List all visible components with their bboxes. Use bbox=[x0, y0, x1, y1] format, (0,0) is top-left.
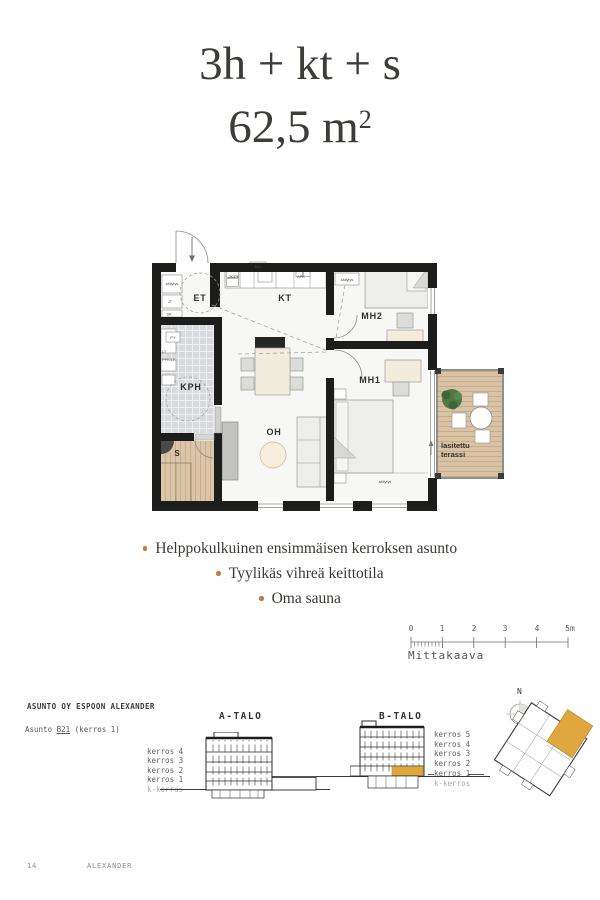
scale-tick-label: 5m bbox=[565, 624, 575, 633]
scale-tick-label: 1 bbox=[440, 624, 445, 633]
feature-item: Tyylikäs vihreä keittotila bbox=[0, 561, 600, 586]
site-plan bbox=[488, 692, 600, 812]
area-superscript: 2 bbox=[359, 105, 372, 134]
label-sailytys-hall: säilytys bbox=[166, 281, 179, 286]
bed-mh1 bbox=[334, 389, 393, 483]
building-a-floor-labels: kerros 4 kerros 3 kerros 2 kerros 1 k-ke… bbox=[147, 747, 183, 794]
bed-mh2 bbox=[365, 267, 428, 308]
feature-item: Helppokulkuinen ensimmäisen kerroksen as… bbox=[0, 536, 600, 561]
label-lt: LT bbox=[162, 349, 167, 354]
floor-label: kerros 1 bbox=[147, 775, 183, 784]
label-jt: JT bbox=[168, 299, 173, 304]
apartment-area: 62,5 m2 bbox=[0, 92, 600, 155]
page-number: 14 bbox=[27, 862, 37, 870]
label-sailytys-mh2: säilytys bbox=[341, 277, 354, 282]
chair-mh2 bbox=[397, 313, 413, 328]
wardrobe bbox=[222, 422, 238, 480]
bullet-icon bbox=[259, 596, 264, 601]
terrace-label-line1: lasitettu bbox=[441, 441, 470, 450]
kerros1-leader bbox=[468, 774, 484, 775]
room-label-kt: KT bbox=[278, 293, 292, 303]
sofa bbox=[297, 417, 327, 487]
label-jk-pk: JK/PK bbox=[229, 274, 240, 279]
dining-table bbox=[255, 348, 290, 395]
label-mu: MU bbox=[255, 264, 261, 269]
terrace-chair bbox=[473, 393, 488, 406]
floor-label: kerros 3 bbox=[147, 756, 183, 765]
terrace-chair bbox=[475, 430, 490, 443]
terrace-label-line2: terassi bbox=[441, 450, 465, 459]
label-sailytys-mh1: säilytys bbox=[379, 479, 392, 484]
terrace-table bbox=[470, 407, 492, 429]
glazed-terrace: lasitettu terassi bbox=[429, 368, 505, 479]
floor-label: kerros 2 bbox=[147, 766, 183, 775]
room-label-mh1: MH1 bbox=[359, 375, 380, 385]
floor-label: kerros 4 bbox=[147, 747, 183, 756]
bathroom-door bbox=[215, 407, 221, 433]
room-label-kph: KPH bbox=[180, 382, 201, 392]
feature-list: Helppokulkuinen ensimmäisen kerroksen as… bbox=[0, 536, 600, 611]
room-label-sauna: S bbox=[174, 449, 180, 458]
building-a-elevation bbox=[198, 732, 328, 802]
highlighted-apartment-floor bbox=[392, 767, 423, 776]
entrance-door bbox=[176, 231, 208, 263]
desk-mh1 bbox=[385, 360, 421, 382]
chair-mh1 bbox=[393, 382, 409, 396]
label-py: PY bbox=[170, 335, 176, 340]
bullet-icon bbox=[216, 571, 221, 576]
brochure-page: 3h + kt + s 62,5 m2 bbox=[0, 0, 600, 900]
terrace-chair bbox=[452, 413, 466, 428]
scale-tick-label: 4 bbox=[535, 624, 540, 633]
label-ppk-lk: PPK/LK bbox=[162, 357, 176, 362]
floor-plan: lasitettu terassi bbox=[150, 211, 510, 516]
building-a-title: A-TALO bbox=[219, 711, 262, 722]
room-label-mh2: MH2 bbox=[361, 311, 382, 321]
living-room-rug bbox=[260, 442, 286, 468]
bullet-icon bbox=[143, 546, 148, 551]
label-apk: APK bbox=[297, 274, 305, 279]
building-b-elevation bbox=[350, 718, 440, 796]
exit-arrow-icon bbox=[429, 441, 434, 456]
apartment-unit: B21 bbox=[57, 725, 71, 734]
label-sk: SK bbox=[166, 312, 172, 317]
scale-tick-label: 0 bbox=[409, 624, 414, 633]
scale-caption: Mittakaava bbox=[408, 649, 484, 662]
apartment-id: Asunto B21 (kerros 1) bbox=[25, 725, 120, 734]
scale-tick-label: 3 bbox=[503, 624, 508, 633]
scale-tick-label: 2 bbox=[472, 624, 477, 633]
apartment-title-block: 3h + kt + s 62,5 m2 bbox=[0, 36, 600, 155]
room-label-et: ET bbox=[193, 293, 206, 303]
feature-item: Oma sauna bbox=[0, 586, 600, 611]
company-name: ASUNTO OY ESPOON ALEXANDER bbox=[27, 702, 155, 711]
apartment-type-title: 3h + kt + s bbox=[0, 36, 600, 92]
room-label-oh: OH bbox=[266, 427, 281, 437]
terrace-sliding-door bbox=[431, 371, 435, 477]
footer-project-name: ALEXANDER bbox=[87, 862, 132, 870]
sauna-door bbox=[195, 434, 214, 440]
